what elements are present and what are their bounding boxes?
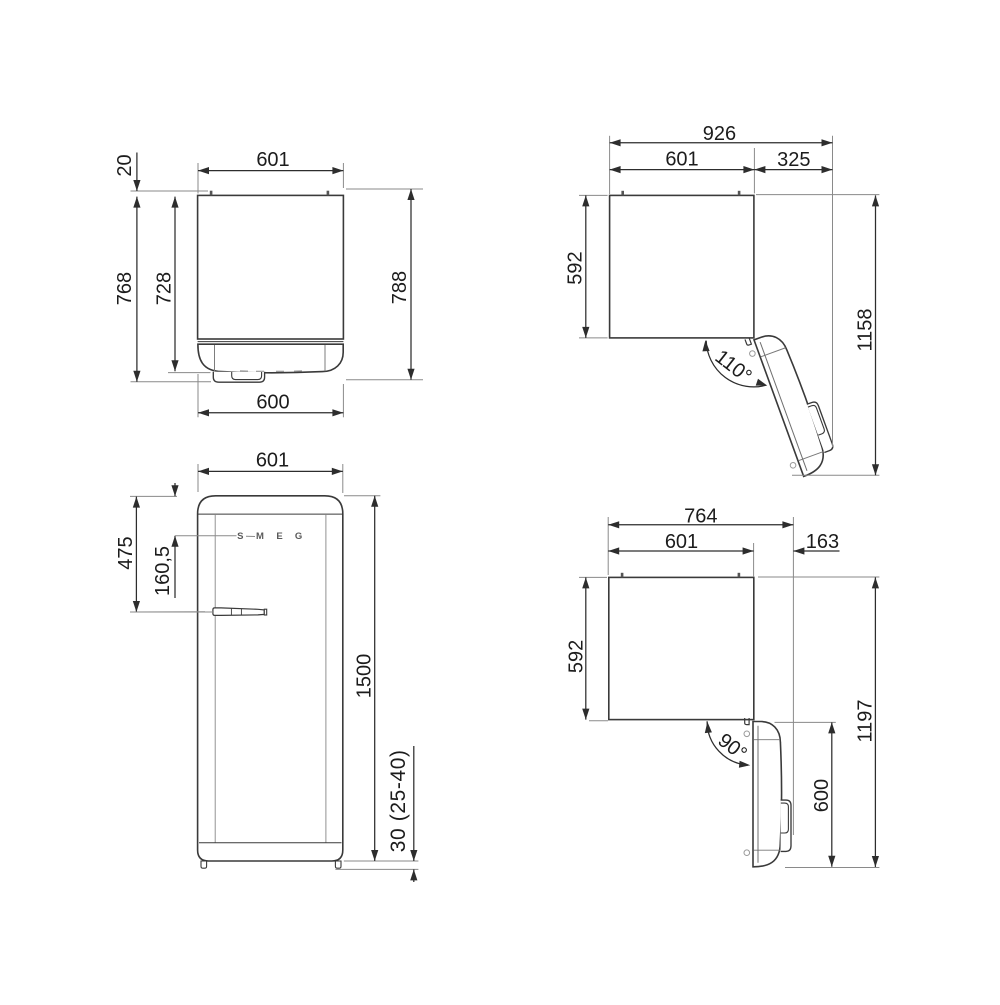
svg-text:20: 20 <box>114 154 136 176</box>
svg-text:601: 601 <box>256 149 289 171</box>
svg-text:926: 926 <box>703 123 736 145</box>
svg-text:600: 600 <box>256 392 289 414</box>
svg-text:600: 600 <box>811 779 833 812</box>
svg-text:601: 601 <box>665 531 698 553</box>
svg-text:768: 768 <box>114 272 136 305</box>
svg-text:E: E <box>276 531 282 542</box>
svg-text:1500: 1500 <box>354 654 376 699</box>
svg-text:764: 764 <box>684 505 717 527</box>
svg-text:601: 601 <box>665 149 698 171</box>
svg-text:G: G <box>295 531 302 542</box>
svg-text:592: 592 <box>564 251 586 284</box>
svg-text:592: 592 <box>566 640 588 673</box>
svg-text:1158: 1158 <box>855 308 877 351</box>
svg-text:1197: 1197 <box>855 699 877 742</box>
svg-text:S: S <box>237 531 243 542</box>
svg-text:728: 728 <box>154 272 176 305</box>
svg-text:M: M <box>256 531 264 542</box>
svg-text:601: 601 <box>256 450 289 472</box>
svg-text:163: 163 <box>806 531 839 553</box>
svg-text:788: 788 <box>389 271 411 304</box>
svg-text:160,5: 160,5 <box>152 546 174 596</box>
svg-text:325: 325 <box>777 149 810 171</box>
svg-text:475: 475 <box>115 536 137 569</box>
svg-text:30 (25-40): 30 (25-40) <box>387 749 410 852</box>
